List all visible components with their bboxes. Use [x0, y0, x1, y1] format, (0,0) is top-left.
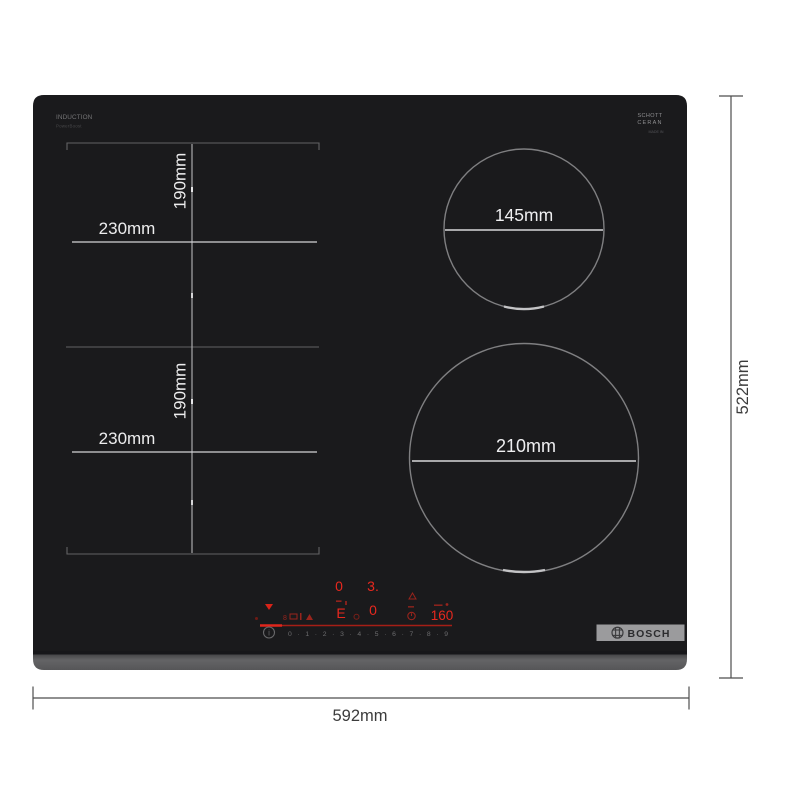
svg-text:INDUCTION: INDUCTION	[56, 114, 93, 121]
svg-text:8: 8	[283, 615, 287, 622]
svg-text:190mm: 190mm	[170, 363, 189, 420]
svg-text:BOSCH: BOSCH	[628, 628, 671, 640]
svg-text:0: 0	[369, 602, 377, 618]
svg-text:CERAN: CERAN	[637, 120, 662, 126]
svg-text:3.: 3.	[367, 578, 379, 594]
svg-text:E: E	[336, 605, 345, 621]
svg-text:210mm: 210mm	[496, 436, 556, 456]
svg-text:230mm: 230mm	[99, 219, 156, 238]
svg-text:145mm: 145mm	[495, 205, 553, 225]
svg-text:592mm: 592mm	[332, 707, 387, 725]
svg-text:160: 160	[431, 608, 454, 623]
svg-text:SCHOTT: SCHOTT	[637, 113, 662, 119]
svg-text:190mm: 190mm	[170, 153, 189, 210]
svg-text:522mm: 522mm	[734, 359, 752, 414]
svg-text:PowerBoost: PowerBoost	[56, 124, 82, 129]
svg-text:0: 0	[335, 578, 343, 594]
svg-text:230mm: 230mm	[99, 429, 156, 448]
svg-text:MADE IN: MADE IN	[649, 130, 664, 134]
svg-text:0 · 1 · 2 · 3 · 4 · 5 · 6 · 7: 0 · 1 · 2 · 3 · 4 · 5 · 6 · 7 · 8 · 9	[288, 631, 448, 638]
svg-text:i: i	[268, 629, 270, 638]
